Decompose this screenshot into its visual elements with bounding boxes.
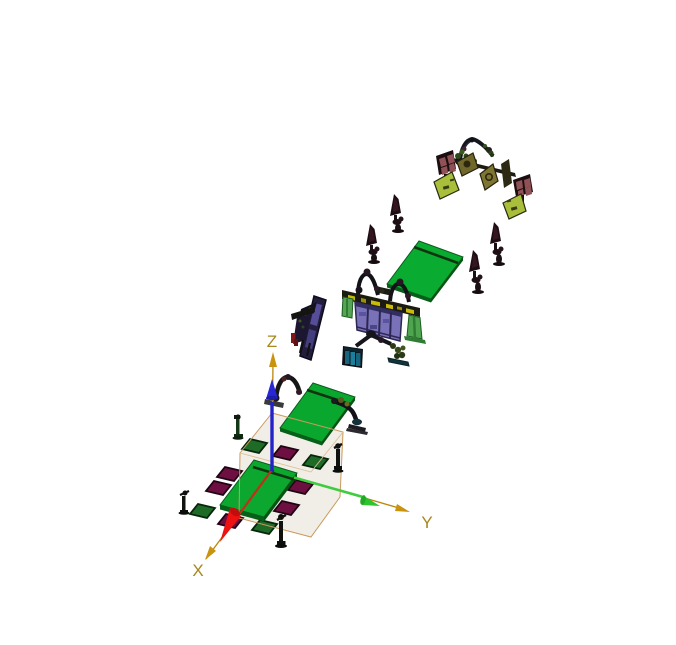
svg-text:Y: Y <box>421 513 432 532</box>
svg-text:Z: Z <box>267 332 277 351</box>
svg-text:X: X <box>192 561 203 580</box>
